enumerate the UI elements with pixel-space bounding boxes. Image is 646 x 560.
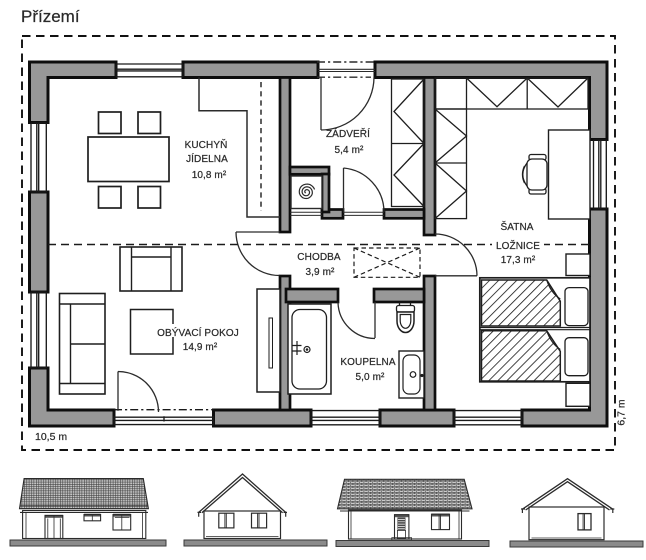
svg-text:KOUPELNA: KOUPELNA <box>340 357 395 368</box>
svg-text:CHODBA: CHODBA <box>297 252 341 263</box>
svg-text:14,9 m²: 14,9 m² <box>183 342 218 353</box>
svg-text:6,7 m: 6,7 m <box>616 399 628 426</box>
svg-text:10,5 m: 10,5 m <box>35 431 67 443</box>
svg-text:3,9 m²: 3,9 m² <box>306 267 336 278</box>
svg-text:Přízemí: Přízemí <box>21 7 80 26</box>
svg-text:10,8 m²: 10,8 m² <box>192 170 227 181</box>
svg-text:5,4 m²: 5,4 m² <box>335 145 365 156</box>
svg-text:LOŽNICE: LOŽNICE <box>496 239 540 252</box>
svg-text:OBÝVACÍ POKOJ: OBÝVACÍ POKOJ <box>157 326 239 339</box>
svg-text:ZÁDVEŘÍ: ZÁDVEŘÍ <box>326 127 370 140</box>
svg-text:JÍDELNA: JÍDELNA <box>186 152 228 165</box>
svg-text:5,0 m²: 5,0 m² <box>356 372 386 383</box>
svg-text:ŠATNA: ŠATNA <box>500 220 533 233</box>
svg-text:17,3 m²: 17,3 m² <box>501 255 536 266</box>
svg-text:KUCHYŇ: KUCHYŇ <box>185 138 228 151</box>
